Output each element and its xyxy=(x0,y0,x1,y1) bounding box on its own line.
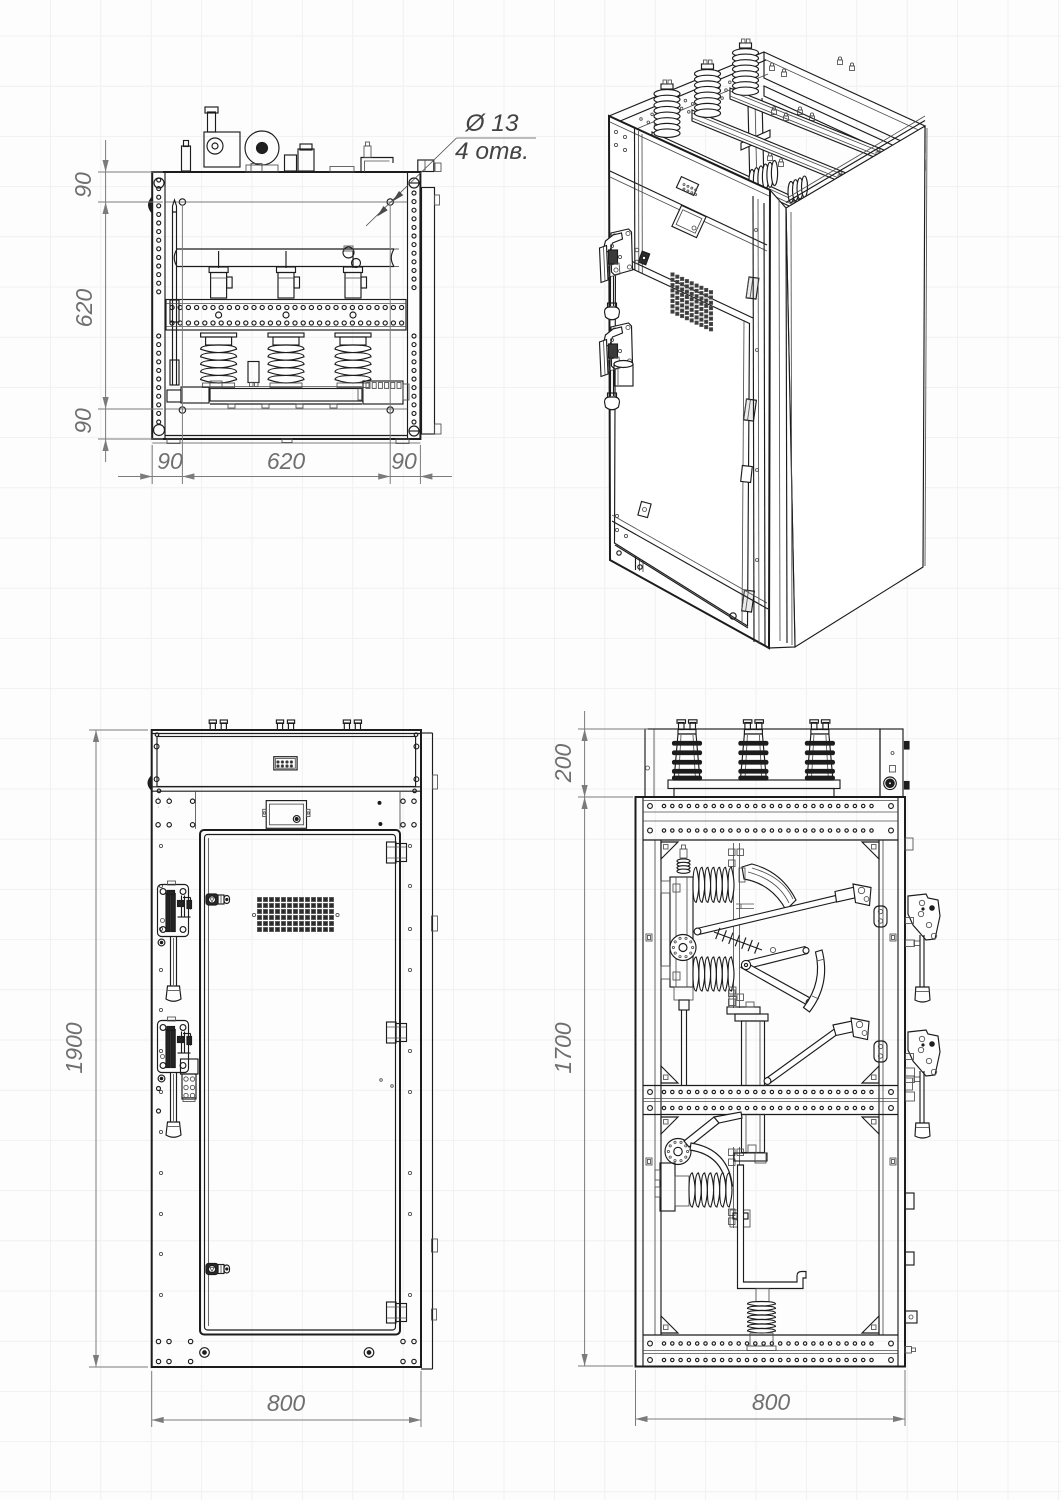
svg-text:620: 620 xyxy=(71,289,97,328)
svg-text:90: 90 xyxy=(157,448,183,474)
svg-text:800: 800 xyxy=(267,1390,306,1416)
svg-text:4 отв.: 4 отв. xyxy=(455,138,529,165)
svg-text:Ø 13: Ø 13 xyxy=(464,110,518,137)
svg-text:800: 800 xyxy=(752,1389,791,1415)
svg-text:90: 90 xyxy=(70,172,96,198)
svg-text:90: 90 xyxy=(70,408,96,434)
svg-text:1900: 1900 xyxy=(61,1022,87,1073)
svg-text:200: 200 xyxy=(550,744,576,784)
svg-text:1700: 1700 xyxy=(550,1022,576,1073)
svg-text:620: 620 xyxy=(267,448,306,474)
svg-text:90: 90 xyxy=(391,448,417,474)
